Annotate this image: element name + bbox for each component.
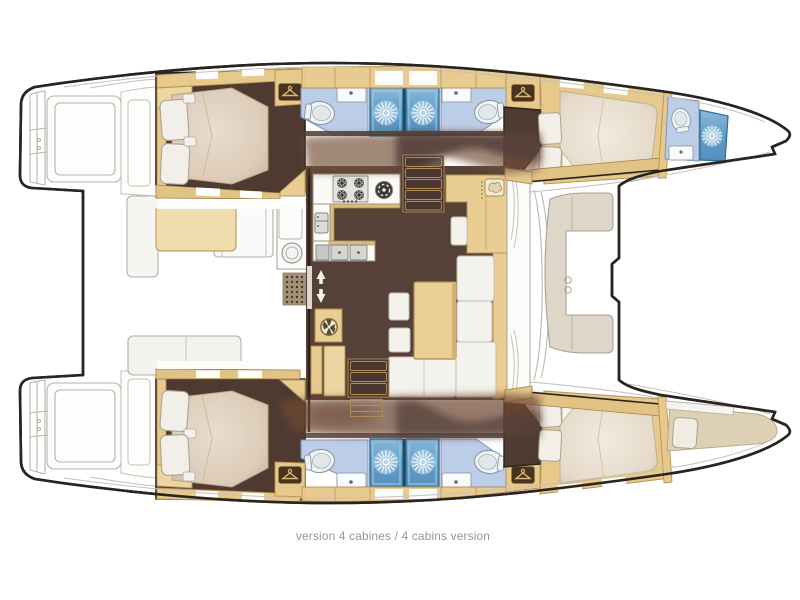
svg-text:version 4 cabines / 4 cabins v: version 4 cabines / 4 cabins version [296, 529, 490, 543]
